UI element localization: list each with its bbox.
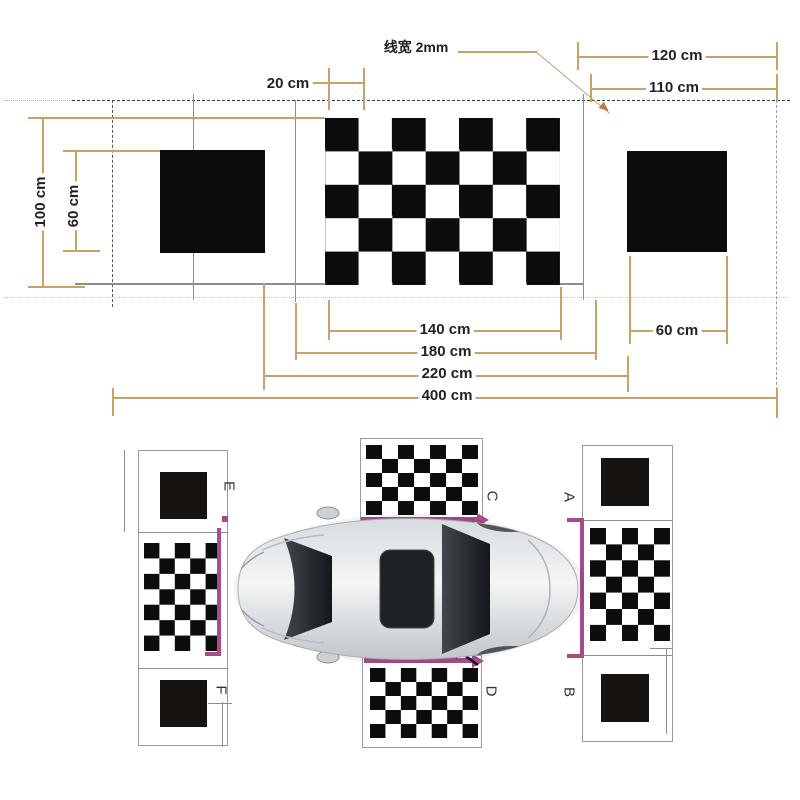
dim-tick-140b [560,287,562,340]
dim-label-110cm: 110 cm [646,80,702,97]
checkerboard-d [370,668,478,738]
square-f [160,680,207,727]
dim-tick-120a [577,42,579,70]
checkerboard-large [325,118,560,285]
board-f-label: F [213,685,230,694]
board-rear-divider-1 [582,520,673,521]
board-c-label: C [484,491,501,502]
calibration-square-right [627,151,727,252]
dim-cap-60-left [63,250,100,252]
board-b-label: B [561,687,578,697]
dim-tick-220b [627,356,629,392]
dim-tick-220a [263,283,265,390]
board-b-artifact-h [650,648,673,649]
board-front-divider-2 [138,668,228,669]
leader-line-h [458,51,537,53]
construction-line-b [295,100,296,302]
dim-tick-180b [595,300,597,360]
board-f-artifact-h [208,703,232,704]
square-b [601,674,649,722]
board-a-label: A [561,492,578,502]
dim-label-140cm: 140 cm [417,322,474,339]
dim-tick-20b [363,68,365,110]
dim-label-60cm-left: 60 cm [66,182,83,231]
ref-line-left-dotted [4,100,72,101]
board-rear-divider-2 [582,655,673,656]
square-e [160,472,207,519]
square-a [601,458,649,506]
leader-line-diagonal [536,52,610,114]
dim-tick-20a [328,68,330,110]
line-width-note: 线宽 2mm [384,37,449,57]
dim-label-60cm-right: 60 cm [653,323,702,340]
dim-tick-60rb [726,256,728,344]
calibration-square-left [160,150,265,253]
dim-label-400cm: 400 cm [419,388,476,405]
ext-square-top [63,150,160,152]
construction-line-c [583,94,584,300]
board-b-artifact-v [666,648,667,734]
board-front-divider-1 [138,532,228,533]
marker-front-bar [217,528,221,656]
dim-tick-140a [328,300,330,340]
dim-tick-400a [112,388,114,416]
car-top-view [228,506,584,664]
dim-label-120cm: 120 cm [649,48,706,65]
marker-front-cap-bottom [205,652,221,656]
dim-label-20cm: 20 cm [264,76,313,93]
dim-tick-120b [776,42,778,70]
dim-tick-400b [776,388,778,418]
dim-tick-110b [776,74,778,102]
checkerboard-c [366,445,478,515]
checkerboard-rear [590,528,670,641]
ext-bottom-cap [28,286,85,288]
boundary-right-dashed [776,100,777,395]
dim-label-180cm: 180 cm [418,344,475,361]
ref-line-top [72,100,790,101]
board-front-artifact [124,450,125,532]
dim-label-220cm: 220 cm [419,366,476,383]
dim-label-100cm: 100 cm [33,174,50,231]
board-e-label: E [221,481,238,491]
calibration-diagram: 100 cm 60 cm 20 cm 120 cm 110 cm 线宽 2mm … [0,0,800,800]
ext-top-edge [28,117,325,119]
checkerboard-front [144,543,221,651]
board-f-artifact-v [222,702,223,747]
ref-line-bottom [4,297,788,298]
boundary-left-dashed [112,100,113,307]
board-d-label: D [483,686,500,697]
